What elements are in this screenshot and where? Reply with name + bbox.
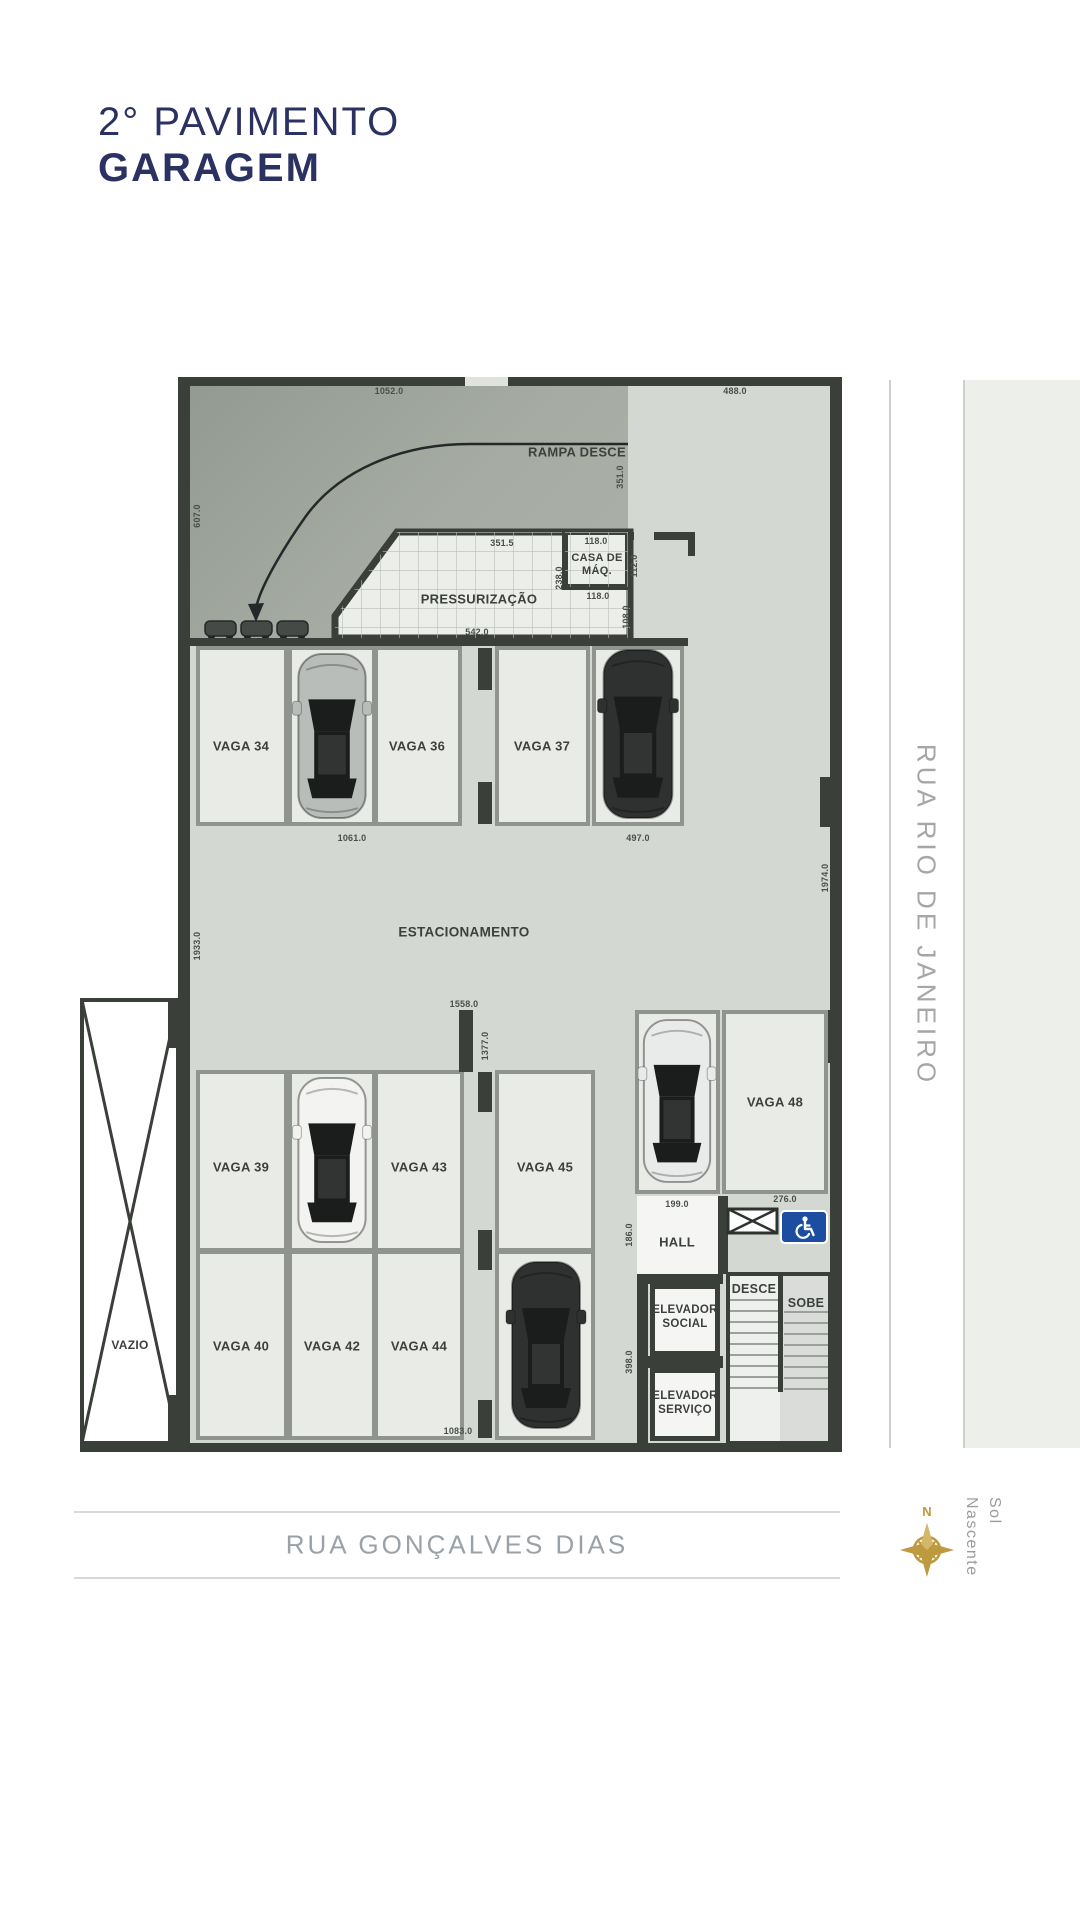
car-white-hall: [638, 1020, 716, 1182]
dim-row3-main: 1083.0: [444, 1426, 473, 1436]
vaga-37-label: VAGA 37: [514, 739, 570, 754]
compass-north-letter: N: [922, 1504, 931, 1519]
dim-left-ramp: 607.0: [192, 504, 202, 528]
dim-hall-height: 186.0: [624, 1223, 634, 1247]
dim-below-casa: 108.0: [621, 605, 631, 629]
vaga-34-label: VAGA 34: [213, 739, 269, 754]
small-cars-row: [205, 621, 308, 638]
vazio-shaft: [82, 1000, 178, 1443]
dim-top-ramp: 1052.0: [375, 386, 404, 396]
compass-rose-icon: N: [895, 1498, 961, 1594]
vaga-40-label: VAGA 40: [213, 1339, 269, 1354]
dim-row1-right: 497.0: [626, 833, 650, 843]
crossed-box: [728, 1209, 777, 1233]
elevator-service-label: ELEVADOR SERVIÇO: [650, 1390, 720, 1418]
vaga-42-label: VAGA 42: [304, 1339, 360, 1354]
dim-casa-right: 112.0: [629, 554, 639, 577]
dim-left-wall: 1933.0: [192, 932, 202, 961]
dim-press-top: 351.5: [490, 538, 514, 548]
car-gray-top: [292, 654, 371, 818]
estacionamento-label: ESTACIONAMENTO: [398, 925, 529, 940]
vaga-48-label: VAGA 48: [747, 1095, 803, 1110]
dim-hall-width: 199.0: [665, 1199, 689, 1209]
dim-casa-bottom: 118.0: [586, 591, 609, 601]
street-band-right: [965, 380, 1080, 1448]
vaga-39-label: VAGA 39: [213, 1160, 269, 1175]
dim-press-right: 238.0: [554, 566, 564, 590]
door-opening: [634, 530, 654, 541]
dim-press-bottom: 542.0: [465, 627, 489, 637]
street-name-bottom: RUA GONÇALVES DIAS: [286, 1530, 629, 1561]
stairs-up-label: SOBE: [788, 1296, 825, 1310]
dim-ramp-right: 351.0: [615, 465, 625, 489]
compass-sun-label: Sol Nascente: [958, 1497, 1006, 1597]
dim-mid-top: 1558.0: [450, 999, 479, 1009]
dim-mid-wall: 1377.0: [480, 1032, 490, 1061]
brochure-page: 2° PAVIMENTO GARAGEM: [0, 0, 1080, 1920]
ramp-label: RAMPA DESCE: [528, 445, 626, 460]
vaga-44-label: VAGA 44: [391, 1339, 447, 1354]
street-separator-line-1: [889, 380, 891, 1448]
street-name-right: RUA RIO DE JANEIRO: [911, 744, 942, 1086]
hall-label: HALL: [659, 1235, 695, 1250]
vaga-43-label: VAGA 43: [391, 1160, 447, 1175]
vaga-36-label: VAGA 36: [389, 739, 445, 754]
car-black-bottom: [506, 1262, 586, 1428]
elevator-social-label: ELEVADOR SOCIAL: [650, 1304, 720, 1332]
dim-top-right: 488.0: [723, 386, 747, 396]
stairs-down-label: DESCE: [732, 1282, 777, 1296]
wall-stub: [688, 532, 695, 556]
street-line-top: [74, 1511, 840, 1513]
car-black-top: [598, 650, 679, 818]
dim-elevator-height: 398.0: [624, 1350, 634, 1374]
stairs-divider-wall: [778, 1274, 783, 1392]
vaga-45-label: VAGA 45: [517, 1160, 573, 1175]
dim-casa-top: 118.0: [584, 536, 607, 546]
machine-room-label: CASA DE MÁQ.: [568, 552, 626, 578]
dim-row1-main: 1061.0: [338, 833, 367, 843]
car-white-middle: [292, 1078, 371, 1242]
vazio-label: VAZIO: [111, 1338, 148, 1352]
dim-vaga48-width: 276.0: [773, 1194, 797, 1204]
street-line-bottom: [74, 1577, 840, 1579]
pressurizacao-label: PRESSURIZAÇÃO: [421, 592, 538, 607]
dim-right-wall: 1974.0: [820, 864, 830, 893]
